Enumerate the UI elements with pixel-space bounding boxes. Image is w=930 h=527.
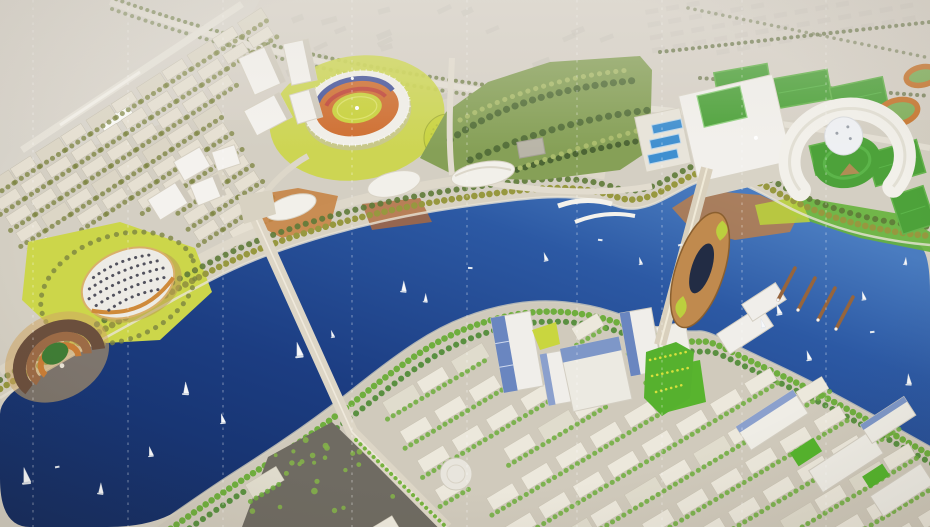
masterplan-photo bbox=[0, 0, 930, 527]
photo-vignette bbox=[0, 0, 930, 527]
scene-svg bbox=[0, 0, 930, 527]
